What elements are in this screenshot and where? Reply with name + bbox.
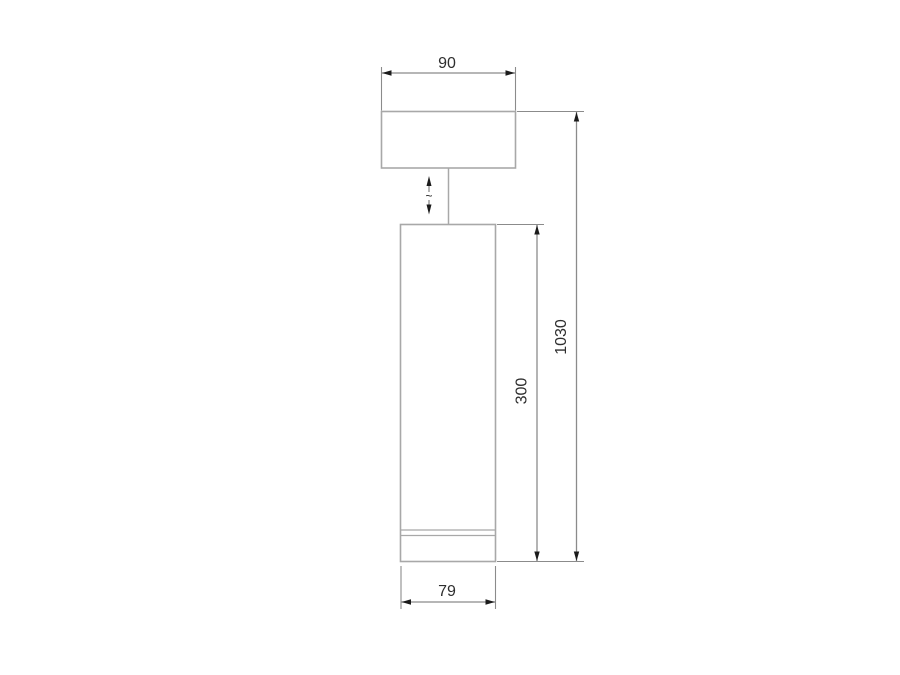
arrowhead-right-icon: [486, 599, 496, 604]
adjustable-height-symbol: ~: [425, 176, 432, 215]
drawing-canvas: ~ 90 1030 300: [0, 0, 900, 675]
arrowhead-bottom-icon: [534, 552, 539, 562]
dim-overall-height: 1030: [497, 112, 584, 562]
canopy-outline: [382, 112, 516, 169]
down-arrow-icon: [427, 205, 432, 215]
dim-canopy-width: 90: [382, 55, 516, 111]
dim-label-overall-height: 1030: [553, 319, 570, 355]
dim-body-height: 300: [497, 225, 544, 562]
up-arrow-icon: [427, 176, 432, 186]
dim-label-body-width: 79: [438, 583, 456, 600]
lamp-body-outline: [401, 225, 496, 562]
fixture-shapes: [382, 112, 516, 562]
arrowhead-top-icon: [574, 112, 579, 122]
arrowhead-top-icon: [534, 225, 539, 235]
dim-label-body-height: 300: [514, 378, 531, 405]
arrowhead-right-icon: [506, 70, 516, 75]
arrowhead-bottom-icon: [574, 552, 579, 562]
arrowhead-left-icon: [382, 70, 392, 75]
drawing-page: ~ 90 1030 300: [0, 0, 900, 675]
dim-body-width: 79: [401, 566, 496, 609]
arrowhead-left-icon: [402, 599, 412, 604]
dim-label-canopy-width: 90: [438, 55, 456, 72]
